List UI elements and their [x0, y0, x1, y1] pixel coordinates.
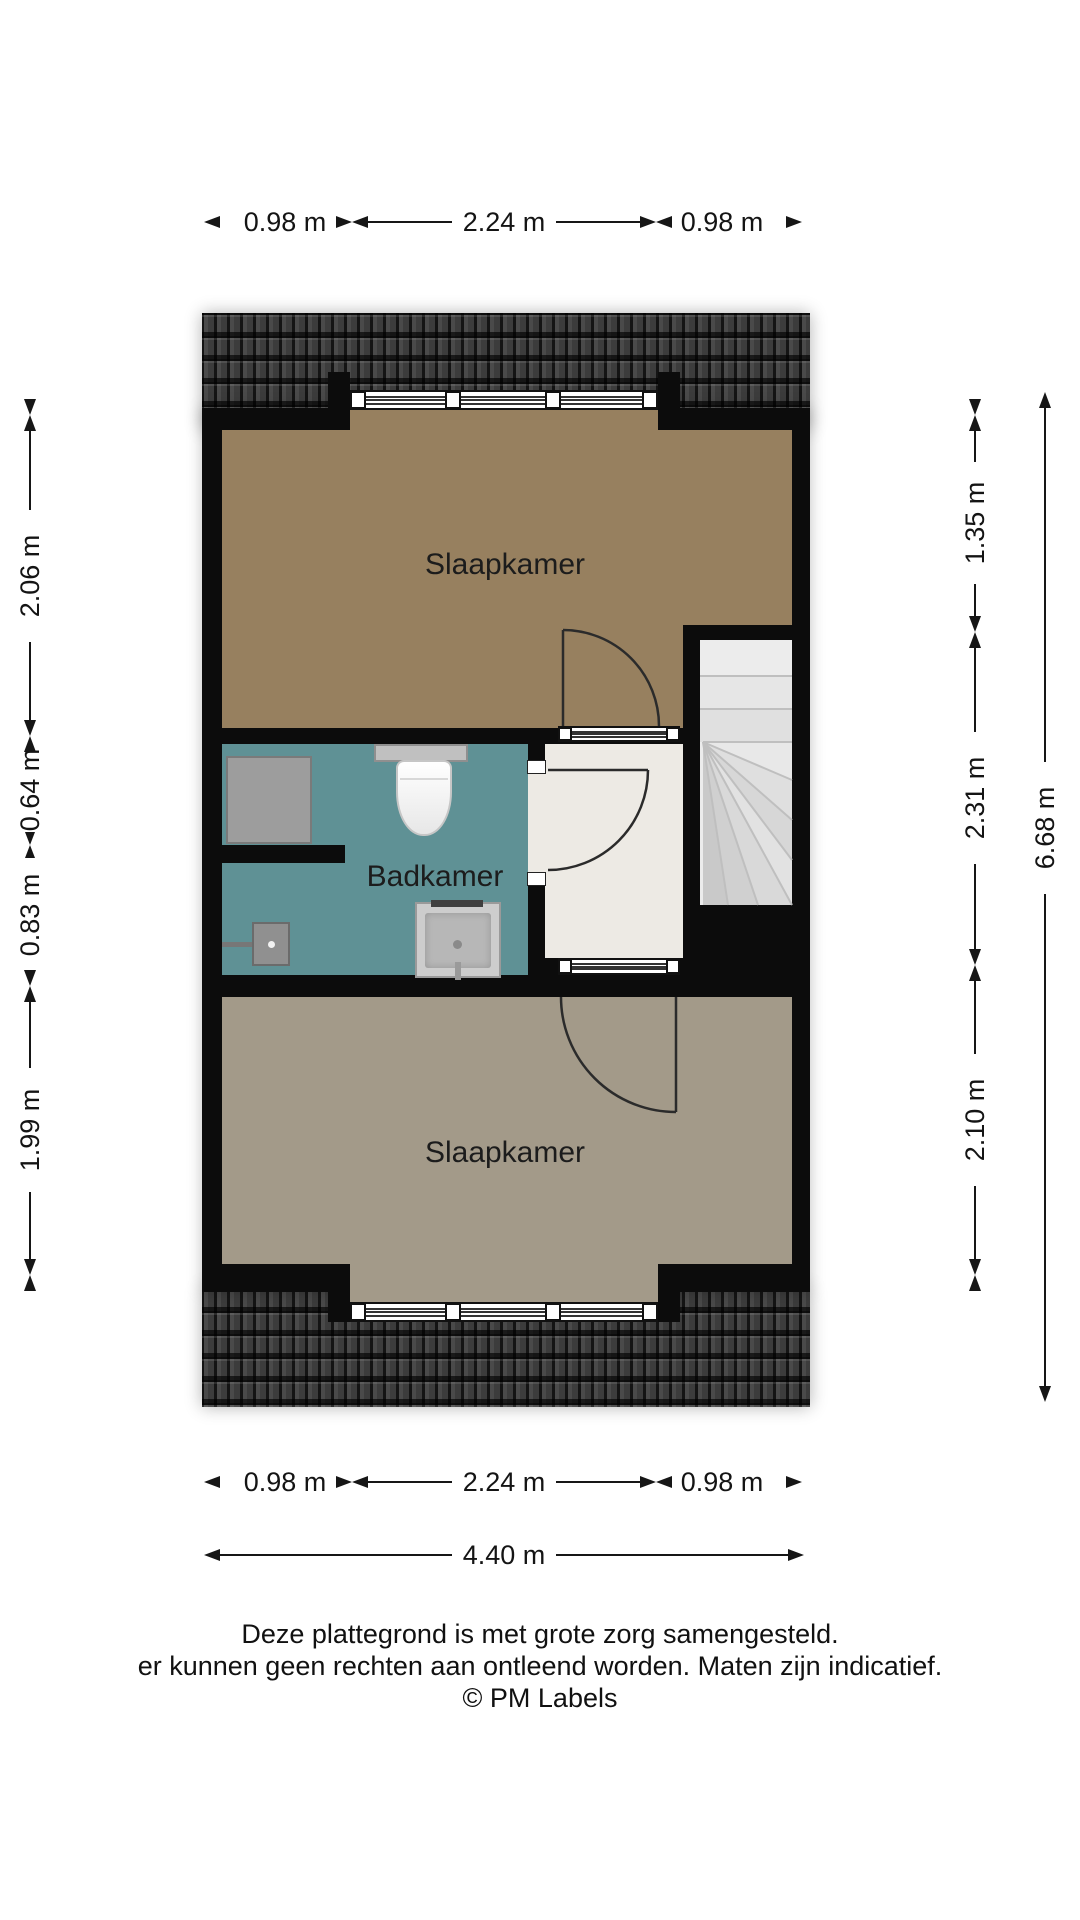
door-bedroom-top — [563, 630, 659, 726]
plan-linework — [0, 0, 1080, 1920]
dim-bottom-left: 0.98 m — [220, 1466, 350, 1498]
dim-left-1: 2.06 m — [14, 511, 46, 641]
dim-left-2: 0.64 m — [14, 725, 46, 855]
dimension-lines — [24, 216, 1051, 1561]
dim-right-1: 1.35 m — [959, 458, 991, 588]
dim-left-3: 0.83 m — [14, 850, 46, 980]
dim-left-4: 1.99 m — [14, 1065, 46, 1195]
dim-right-total: 6.68 m — [1029, 763, 1061, 893]
dim-top-right: 0.98 m — [657, 206, 787, 238]
dim-bottom-center: 2.24 m — [439, 1466, 569, 1498]
dim-top-left: 0.98 m — [220, 206, 350, 238]
floorplan-page: Slaapkamer Badkamer Slaapkamer — [0, 0, 1080, 1920]
dim-top-center: 2.24 m — [439, 206, 569, 238]
door-bathroom — [548, 770, 648, 870]
staircase — [700, 640, 792, 905]
dim-right-2: 2.31 m — [959, 733, 991, 863]
dim-bottom-right: 0.98 m — [657, 1466, 787, 1498]
dim-right-3: 2.10 m — [959, 1055, 991, 1185]
door-bedroom-bottom — [561, 997, 676, 1112]
dim-bottom-total: 4.40 m — [439, 1539, 569, 1571]
